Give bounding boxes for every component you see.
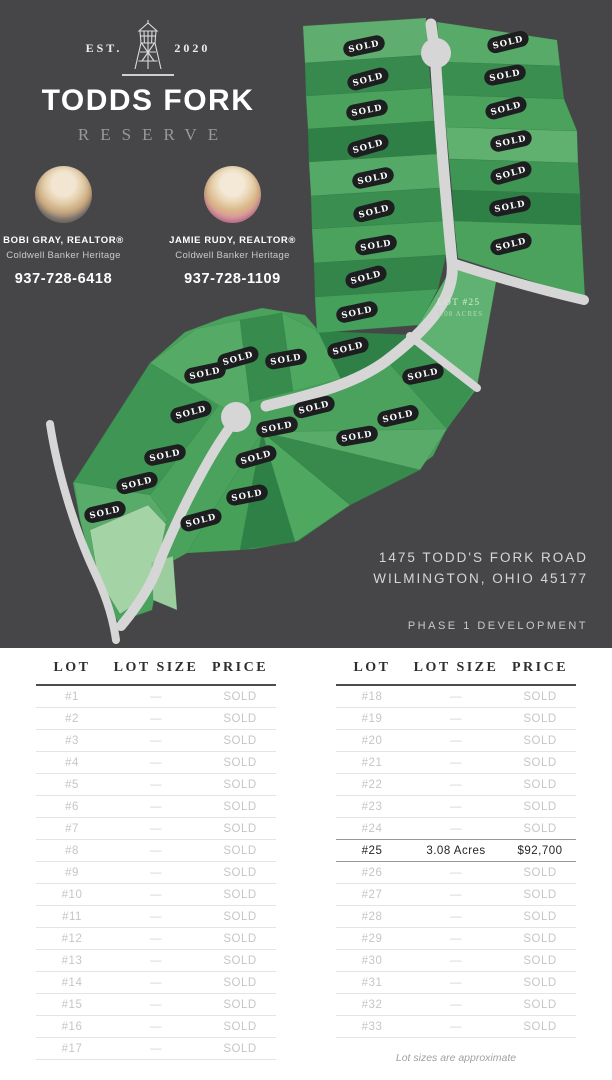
lot-number: #32 [336, 999, 408, 1011]
lot-price: SOLD [504, 823, 576, 835]
lot-number: #2 [36, 713, 108, 725]
lot-number: #18 [336, 691, 408, 703]
lot-price: SOLD [504, 1021, 576, 1033]
lot-price: SOLD [204, 1021, 276, 1033]
map-section: LOT #25 3.08 ACRES SOLDSOLDSOLDSOLDSOLDS… [0, 0, 612, 648]
address-block: 1475 TODD'S FORK ROAD WILMINGTON, OHIO 4… [373, 548, 588, 632]
lot-price: SOLD [204, 889, 276, 901]
lot-number: #12 [36, 933, 108, 945]
table-row: #22—SOLD [336, 774, 576, 796]
lot-price: SOLD [504, 801, 576, 813]
brand-subtitle: RESERVE [0, 125, 296, 145]
lot-size: — [108, 845, 204, 857]
lot-price: SOLD [504, 757, 576, 769]
lot-price: SOLD [204, 977, 276, 989]
address-line1: 1475 TODD'S FORK ROAD [373, 548, 588, 569]
lot-size: — [408, 735, 504, 747]
table-header: LOT LOT SIZE PRICE [36, 660, 276, 686]
lot-price: SOLD [204, 867, 276, 879]
lot-size: — [408, 779, 504, 791]
table-row: #1—SOLD [36, 686, 276, 708]
est-label: EST. [86, 41, 123, 56]
lot-price: SOLD [504, 867, 576, 879]
lot-size: 3.08 Acres [408, 845, 504, 857]
lot-price: SOLD [504, 911, 576, 923]
table-row: #5—SOLD [36, 774, 276, 796]
table-row: #31—SOLD [336, 972, 576, 994]
table-row: #24—SOLD [336, 818, 576, 840]
lot-price: SOLD [504, 713, 576, 725]
lot-price: SOLD [204, 845, 276, 857]
lot-size: — [408, 889, 504, 901]
lot-price: SOLD [504, 977, 576, 989]
table-note: Lot sizes are approximate [336, 1052, 576, 1064]
lot-number: #11 [36, 911, 108, 923]
lot-price: SOLD [204, 691, 276, 703]
lot-table-left-body: #1—SOLD#2—SOLD#3—SOLD#4—SOLD#5—SOLD#6—SO… [36, 686, 276, 1060]
lot-price: SOLD [204, 911, 276, 923]
lot-price: SOLD [504, 691, 576, 703]
table-row: #16—SOLD [36, 1016, 276, 1038]
brand-divider [122, 74, 174, 76]
lot-size: — [408, 867, 504, 879]
lot-size: — [108, 977, 204, 989]
table-row: #9—SOLD [36, 862, 276, 884]
lot-price: SOLD [204, 999, 276, 1011]
lot-number: #10 [36, 889, 108, 901]
table-row: #253.08 Acres$92,700 [336, 839, 576, 862]
lot-number: #28 [336, 911, 408, 923]
year-label: 2020 [174, 41, 210, 56]
lot-number: #17 [36, 1043, 108, 1055]
header-lot-size: LOT SIZE [408, 660, 504, 676]
lot-size: — [108, 911, 204, 923]
lot-number: #19 [336, 713, 408, 725]
header-lot-size: LOT SIZE [108, 660, 204, 676]
lot-number: #21 [336, 757, 408, 769]
table-header: LOT LOT SIZE PRICE [336, 660, 576, 686]
header-lot: LOT [336, 660, 408, 676]
lot-number: #24 [336, 823, 408, 835]
header-price: PRICE [204, 660, 276, 676]
table-row: #3—SOLD [36, 730, 276, 752]
table-row: #17—SOLD [36, 1038, 276, 1060]
table-row: #21—SOLD [336, 752, 576, 774]
lot-number: #22 [336, 779, 408, 791]
phase-label: PHASE 1 DEVELOPMENT [373, 620, 588, 632]
lot-price: SOLD [204, 1043, 276, 1055]
lot-size: — [108, 999, 204, 1011]
lot-table-right: LOT LOT SIZE PRICE #18—SOLD#19—SOLD#20—S… [336, 660, 576, 1064]
agent-company: Coldwell Banker Heritage [169, 250, 296, 261]
lot-number: #29 [336, 933, 408, 945]
table-row: #15—SOLD [36, 994, 276, 1016]
agent-card: JAMIE RUDY, REALTOR® Coldwell Banker Her… [169, 166, 296, 287]
lot-size: — [408, 713, 504, 725]
lot-size: — [108, 955, 204, 967]
lot-number: #4 [36, 757, 108, 769]
lot-number: #5 [36, 779, 108, 791]
lot-number: #30 [336, 955, 408, 967]
lot-number: #8 [36, 845, 108, 857]
agent-card: BOBI GRAY, REALTOR® Coldwell Banker Heri… [0, 166, 127, 287]
lot-size: — [408, 955, 504, 967]
lot-number: #15 [36, 999, 108, 1011]
header-price: PRICE [504, 660, 576, 676]
lot-size: — [108, 1021, 204, 1033]
lot-size: — [408, 911, 504, 923]
table-row: #8—SOLD [36, 840, 276, 862]
lot-price: SOLD [504, 735, 576, 747]
lot-size: — [108, 713, 204, 725]
table-row: #20—SOLD [336, 730, 576, 752]
lot-number: #25 [336, 845, 408, 857]
lot-price: SOLD [204, 933, 276, 945]
lot-size: — [108, 779, 204, 791]
lot-price: SOLD [204, 713, 276, 725]
table-row: #23—SOLD [336, 796, 576, 818]
table-row: #7—SOLD [36, 818, 276, 840]
lot-size: — [108, 867, 204, 879]
table-row: #6—SOLD [36, 796, 276, 818]
lot-number: #31 [336, 977, 408, 989]
table-row: #32—SOLD [336, 994, 576, 1016]
lot-size: — [408, 1021, 504, 1033]
flyer-page: LOT #25 3.08 ACRES SOLDSOLDSOLDSOLDSOLDS… [0, 0, 612, 1080]
lot-size: — [108, 691, 204, 703]
cul-de-sac [421, 38, 451, 68]
lot-number: #1 [36, 691, 108, 703]
lot-size: — [408, 977, 504, 989]
agent-phone: 937-728-1109 [169, 271, 296, 287]
agent-name: BOBI GRAY, REALTOR® [0, 235, 127, 246]
table-row: #18—SOLD [336, 686, 576, 708]
cul-de-sac [221, 402, 251, 432]
header-lot: LOT [36, 660, 108, 676]
lot-size: — [408, 757, 504, 769]
lot-price: SOLD [504, 779, 576, 791]
lot-number: #20 [336, 735, 408, 747]
lot-size: — [108, 823, 204, 835]
lot-price: SOLD [504, 889, 576, 901]
table-row: #11—SOLD [36, 906, 276, 928]
lot-number: #6 [36, 801, 108, 813]
lot-number: #27 [336, 889, 408, 901]
lot-size: — [408, 933, 504, 945]
lot-number: #13 [36, 955, 108, 967]
lot-price: SOLD [504, 933, 576, 945]
brand-block: EST. 2020 TODDS FORK R [0, 20, 296, 145]
agent-company: Coldwell Banker Heritage [0, 250, 127, 261]
lot-size: — [408, 823, 504, 835]
table-row: #13—SOLD [36, 950, 276, 972]
lot-size: — [108, 801, 204, 813]
lot-table-left: LOT LOT SIZE PRICE #1—SOLD#2—SOLD#3—SOLD… [36, 660, 276, 1064]
lot-number: #33 [336, 1021, 408, 1033]
agent-photo [204, 166, 261, 223]
lot-number: #23 [336, 801, 408, 813]
water-tower-icon [131, 20, 165, 72]
available-lot-size-label: 3.08 ACRES [437, 310, 483, 318]
brand-title: TODDS FORK [0, 84, 296, 118]
agent-photo [35, 166, 92, 223]
lot-size: — [108, 933, 204, 945]
lot-price: SOLD [204, 955, 276, 967]
table-row: #14—SOLD [36, 972, 276, 994]
lot-number: #3 [36, 735, 108, 747]
lot-price: SOLD [204, 757, 276, 769]
lot-number: #7 [36, 823, 108, 835]
agent-phone: 937-728-6418 [0, 271, 127, 287]
address-line2: WILMINGTON, OHIO 45177 [373, 569, 588, 590]
table-row: #4—SOLD [36, 752, 276, 774]
table-row: #26—SOLD [336, 862, 576, 884]
lot-number: #16 [36, 1021, 108, 1033]
table-row: #29—SOLD [336, 928, 576, 950]
lot-size: — [408, 691, 504, 703]
lot-price: SOLD [204, 801, 276, 813]
available-lot-label: LOT #25 [437, 298, 480, 308]
lot-price: SOLD [204, 779, 276, 791]
lot-size: — [108, 735, 204, 747]
lot-table-right-body: #18—SOLD#19—SOLD#20—SOLD#21—SOLD#22—SOLD… [336, 686, 576, 1038]
lot-price: SOLD [204, 823, 276, 835]
lot-number: #26 [336, 867, 408, 879]
lot-size: — [408, 801, 504, 813]
lot-price: SOLD [504, 955, 576, 967]
table-row: #27—SOLD [336, 884, 576, 906]
lot-price: SOLD [504, 999, 576, 1011]
pricing-section: LOT LOT SIZE PRICE #1—SOLD#2—SOLD#3—SOLD… [0, 648, 612, 1064]
lot-number: #14 [36, 977, 108, 989]
agents-block: BOBI GRAY, REALTOR® Coldwell Banker Heri… [0, 166, 296, 287]
lot-size: — [108, 889, 204, 901]
table-row: #19—SOLD [336, 708, 576, 730]
table-row: #10—SOLD [36, 884, 276, 906]
lot-price: SOLD [204, 735, 276, 747]
lot-size: — [408, 999, 504, 1011]
lot-size: — [108, 757, 204, 769]
lot-number: #9 [36, 867, 108, 879]
lot-size: — [108, 1043, 204, 1055]
lot-price: $92,700 [504, 845, 576, 857]
table-row: #28—SOLD [336, 906, 576, 928]
table-row: #30—SOLD [336, 950, 576, 972]
table-row: #33—SOLD [336, 1016, 576, 1038]
agent-name: JAMIE RUDY, REALTOR® [169, 235, 296, 246]
table-row: #12—SOLD [36, 928, 276, 950]
table-row: #2—SOLD [36, 708, 276, 730]
